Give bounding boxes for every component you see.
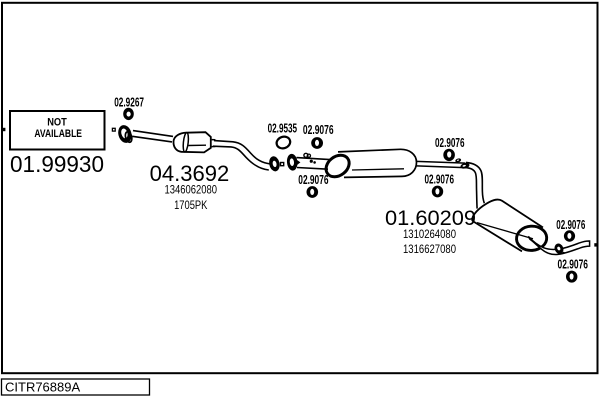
svg-text:02.9076: 02.9076 bbox=[556, 217, 585, 232]
svg-text:02.9535: 02.9535 bbox=[268, 120, 298, 135]
svg-text:1346062080: 1346062080 bbox=[165, 185, 218, 197]
svg-text:01.60209: 01.60209 bbox=[385, 207, 476, 230]
svg-text:02.9076: 02.9076 bbox=[298, 172, 328, 187]
svg-text:02.9076: 02.9076 bbox=[435, 135, 465, 150]
svg-text:02.9267: 02.9267 bbox=[114, 94, 144, 109]
svg-text:AVAILABLE: AVAILABLE bbox=[34, 128, 82, 140]
svg-text:1316627080: 1316627080 bbox=[403, 244, 456, 256]
svg-text:1310264080: 1310264080 bbox=[403, 229, 456, 241]
svg-text:02.9076: 02.9076 bbox=[303, 122, 334, 137]
svg-text:02.9076: 02.9076 bbox=[558, 256, 589, 271]
svg-text:02.9076: 02.9076 bbox=[425, 171, 455, 186]
svg-text:NOT: NOT bbox=[47, 117, 67, 129]
svg-text:CITR76889A: CITR76889A bbox=[5, 380, 80, 395]
svg-text:01.99930: 01.99930 bbox=[10, 151, 104, 177]
svg-text:04.3692: 04.3692 bbox=[150, 161, 230, 186]
svg-text:1705PK: 1705PK bbox=[174, 200, 208, 212]
